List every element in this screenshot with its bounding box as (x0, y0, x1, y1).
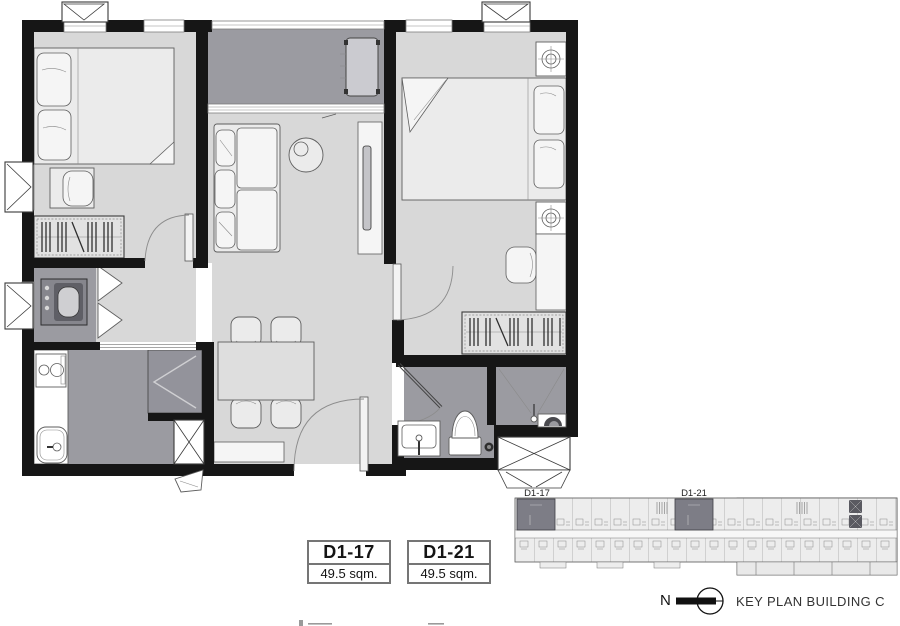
wardrobe-2 (462, 312, 566, 354)
north-bar-icon (676, 598, 716, 605)
bedroom2-door (393, 264, 401, 320)
stove-icon (36, 354, 66, 387)
key-plan: D1-17 D1-21 (515, 488, 897, 575)
entry-bench (214, 442, 284, 462)
dining-table (218, 342, 314, 400)
desk-2 (536, 234, 566, 310)
unit-label-box-2: D1-21 49.5 sqm. (407, 540, 491, 584)
north-arrow (676, 588, 723, 614)
side-table (289, 138, 323, 172)
kitchen-sliding-door (100, 342, 196, 350)
ac-ledge (340, 38, 380, 96)
sofa-cushion (216, 130, 235, 166)
shower-drain-icon (531, 416, 537, 422)
cropped-footer-marks (299, 620, 444, 626)
wardrobe-1 (34, 216, 124, 258)
unit-area-1: 49.5 sqm. (307, 565, 391, 584)
sliding-window (208, 104, 384, 113)
tv (363, 146, 371, 230)
ac-unit-icon (5, 162, 33, 212)
key-plan-tag-right: D1-21 (681, 488, 707, 499)
floor-plan-canvas: D1-17 D1-21 (0, 0, 900, 626)
north-label: N (660, 592, 671, 609)
key-plan-title: KEY PLAN BUILDING C (736, 594, 885, 609)
chair-2 (506, 247, 536, 283)
key-plan-tag-left: D1-17 (524, 488, 550, 499)
unit-area-2: 49.5 sqm. (407, 565, 491, 584)
floor-plan-sheet: D1-17 D1-21 D1-17 49.5 sqm. D1-21 49.5 s… (0, 0, 900, 626)
ac-unit-icon (482, 2, 530, 22)
unit-code-1: D1-17 (307, 540, 391, 565)
sofa-cushion (216, 212, 235, 248)
ac-condenser-icon (346, 38, 378, 96)
toilet-tank (449, 437, 481, 455)
key-plan-corridor (515, 530, 897, 538)
highlighted-unit-d1-21 (675, 499, 713, 530)
chair-1 (63, 171, 93, 206)
highlighted-unit-d1-17 (517, 499, 555, 530)
unit-code-2: D1-21 (407, 540, 491, 565)
pillow-icon (38, 110, 71, 160)
pillow-icon (37, 53, 71, 106)
sofa-cushion (215, 170, 235, 208)
unit-label-box-1: D1-17 49.5 sqm. (307, 540, 391, 584)
bedroom1-door (185, 214, 193, 261)
entrance-door (360, 397, 368, 471)
louver-flap (498, 470, 570, 488)
ac-unit-icon (5, 283, 33, 329)
hallway-floor (126, 258, 196, 342)
dining-chair (271, 398, 301, 428)
dining-chair (231, 398, 261, 428)
